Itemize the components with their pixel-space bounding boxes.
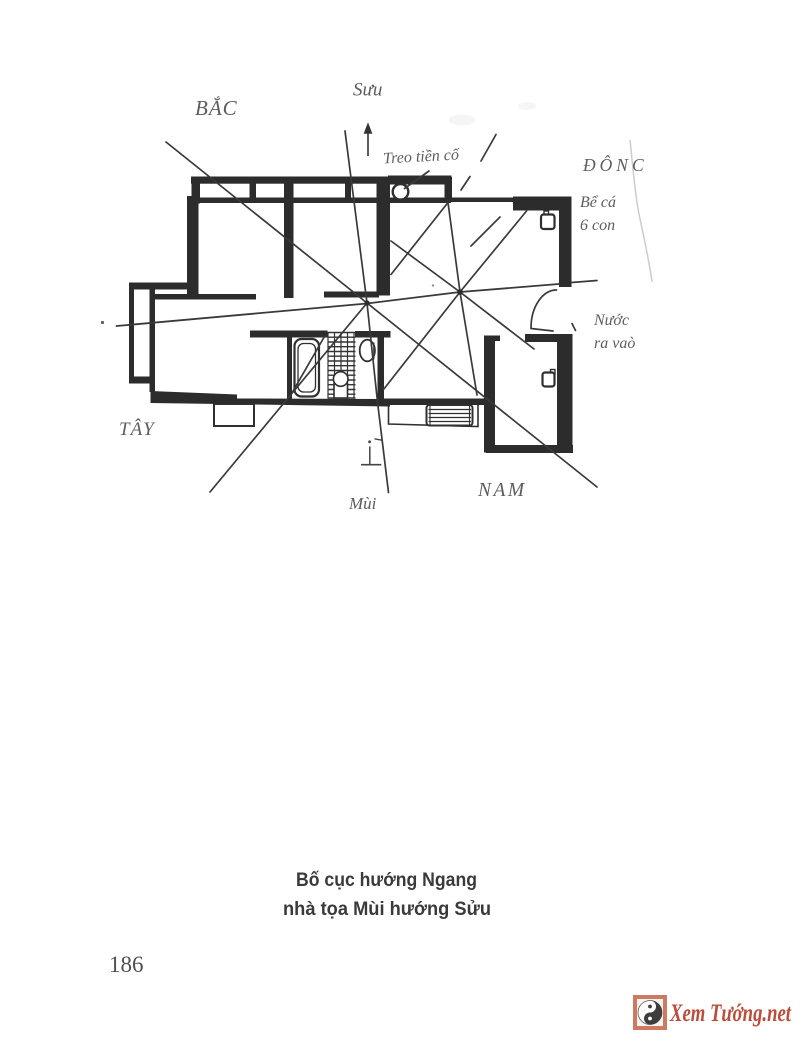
svg-text:Bể cá: Bể cá [580, 194, 616, 211]
svg-text:ĐÔNC: ĐÔNC [582, 155, 648, 175]
svg-text:Sưu: Sưu [353, 80, 382, 101]
svg-text:Xem Tướng.net: Xem Tướng.net [669, 1000, 792, 1027]
svg-text:TÂY: TÂY [119, 418, 156, 440]
svg-text:BẮC: BẮC [195, 96, 238, 120]
svg-text:186: 186 [109, 952, 144, 977]
svg-text:Bố cục hướng Ngang: Bố cục hướng Ngang [296, 869, 477, 891]
svg-text:6 con: 6 con [580, 217, 615, 234]
svg-text:ra vaò: ra vaò [594, 335, 635, 352]
svg-text:Nước: Nước [593, 312, 629, 329]
svg-text:Mùi: Mùi [348, 494, 377, 513]
svg-text:NAM: NAM [477, 480, 527, 501]
svg-text:nhà tọa Mùi hướng Sửu: nhà tọa Mùi hướng Sửu [283, 898, 491, 920]
